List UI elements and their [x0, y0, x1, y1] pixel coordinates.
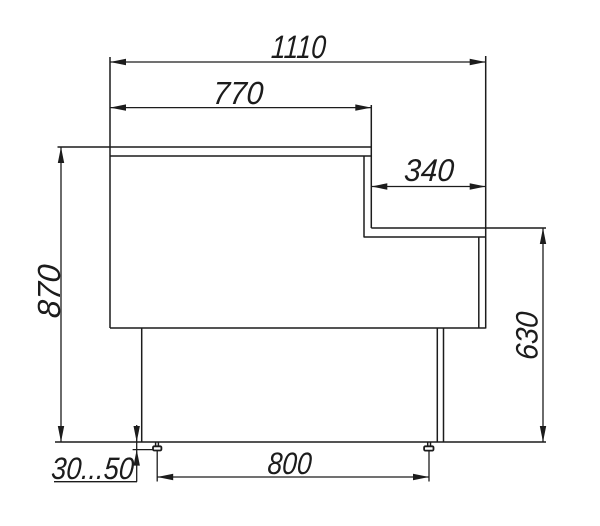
svg-text:800: 800 — [267, 447, 313, 481]
svg-text:770: 770 — [212, 75, 265, 111]
svg-text:30...50: 30...50 — [50, 452, 135, 486]
svg-text:870: 870 — [31, 263, 67, 319]
svg-text:340: 340 — [403, 152, 455, 188]
svg-text:630: 630 — [511, 310, 545, 361]
svg-text:1110: 1110 — [270, 29, 328, 65]
